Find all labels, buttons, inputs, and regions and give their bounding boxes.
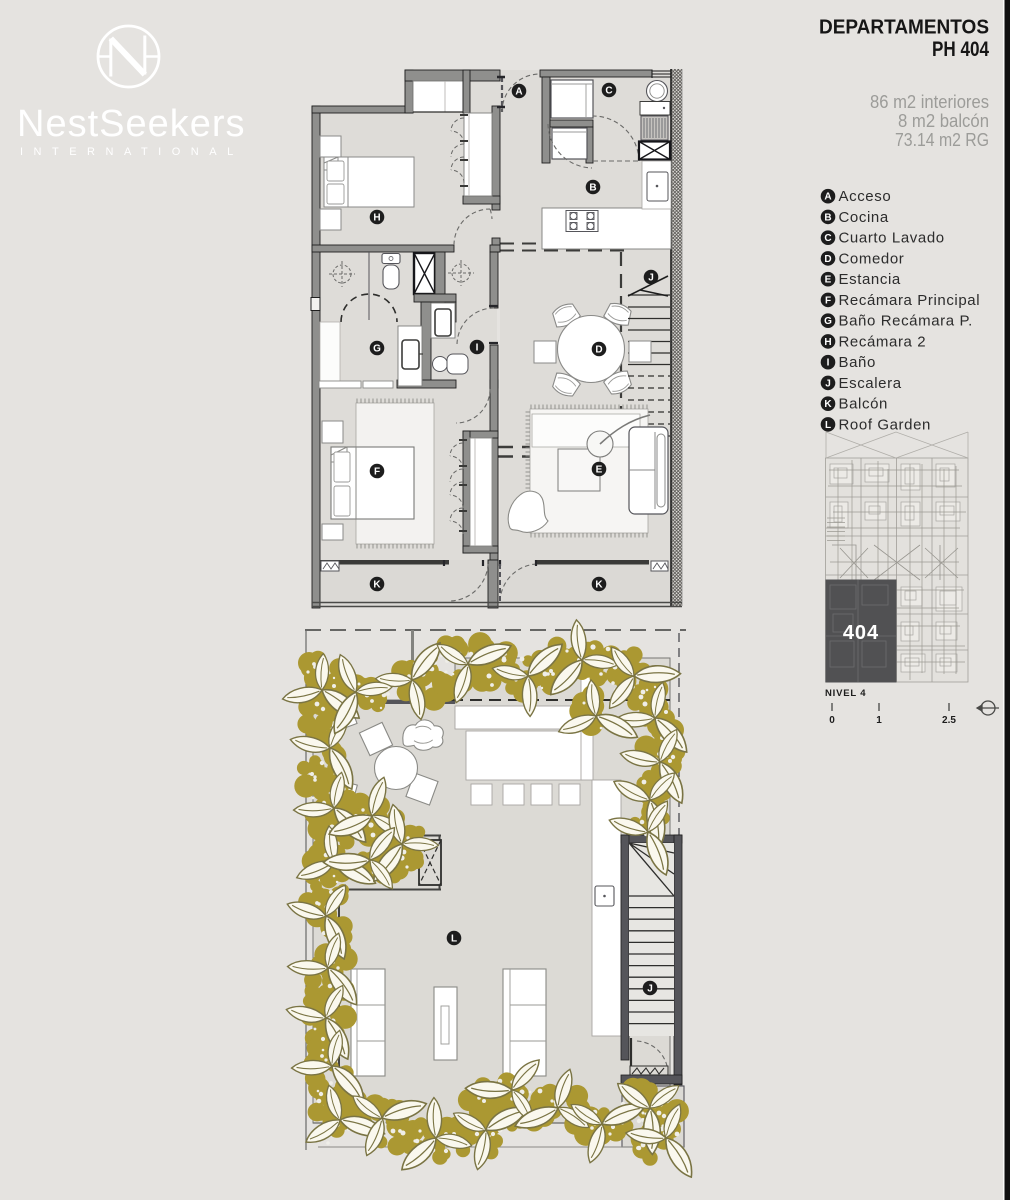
svg-text:L: L <box>451 934 457 945</box>
svg-text:I: I <box>476 343 479 354</box>
svg-text:Acceso: Acceso <box>839 188 892 205</box>
svg-text:I: I <box>827 358 830 369</box>
svg-text:D: D <box>824 254 831 265</box>
svg-text:K: K <box>595 580 603 591</box>
svg-text:K: K <box>824 399 832 410</box>
svg-text:8 m2 balcón: 8 m2 balcón <box>898 110 989 131</box>
svg-text:C: C <box>824 233 831 244</box>
svg-text:E: E <box>596 465 603 476</box>
svg-text:2.5: 2.5 <box>942 715 956 726</box>
svg-text:L: L <box>825 420 831 431</box>
svg-text:C: C <box>605 86 612 97</box>
svg-text:Roof Garden: Roof Garden <box>839 416 931 433</box>
svg-text:Comedor: Comedor <box>839 250 905 267</box>
svg-text:404: 404 <box>843 622 879 644</box>
svg-text:NestSeekers: NestSeekers <box>17 103 246 145</box>
svg-text:J: J <box>648 273 654 284</box>
svg-text:Cocina: Cocina <box>839 209 889 226</box>
svg-text:D: D <box>595 345 602 356</box>
svg-text:E: E <box>825 275 832 286</box>
svg-text:Cuarto Lavado: Cuarto Lavado <box>839 230 945 247</box>
svg-text:Escalera: Escalera <box>839 375 902 392</box>
svg-text:1: 1 <box>876 715 882 726</box>
svg-text:Balcón: Balcón <box>839 396 888 413</box>
svg-text:73.14 m2 RG: 73.14 m2 RG <box>895 129 989 150</box>
svg-text:A: A <box>515 87 522 98</box>
svg-text:J: J <box>825 378 831 389</box>
svg-text:B: B <box>824 212 831 223</box>
svg-text:Estancia: Estancia <box>839 271 901 288</box>
svg-text:NIVEL 4: NIVEL 4 <box>825 688 866 699</box>
svg-text:F: F <box>825 295 831 306</box>
svg-text:H: H <box>824 337 831 348</box>
svg-text:Baño: Baño <box>839 354 876 371</box>
svg-text:Baño Recámara P.: Baño Recámara P. <box>839 313 973 330</box>
svg-text:86 m2 interiores: 86 m2 interiores <box>870 91 989 112</box>
svg-text:A: A <box>824 192 831 203</box>
svg-text:G: G <box>824 316 832 327</box>
svg-text:F: F <box>374 467 380 478</box>
svg-text:Recámara Principal: Recámara Principal <box>839 292 981 309</box>
svg-text:INTERNATIONAL: INTERNATIONAL <box>20 146 244 158</box>
svg-text:PH 404: PH 404 <box>932 38 989 61</box>
svg-text:Recámara 2: Recámara 2 <box>839 333 927 350</box>
svg-text:K: K <box>373 580 381 591</box>
svg-text:0: 0 <box>829 715 835 726</box>
svg-text:J: J <box>647 984 653 995</box>
svg-text:B: B <box>589 183 596 194</box>
svg-text:DEPARTAMENTOS: DEPARTAMENTOS <box>819 16 989 39</box>
svg-text:G: G <box>373 344 381 355</box>
svg-text:H: H <box>373 213 380 224</box>
